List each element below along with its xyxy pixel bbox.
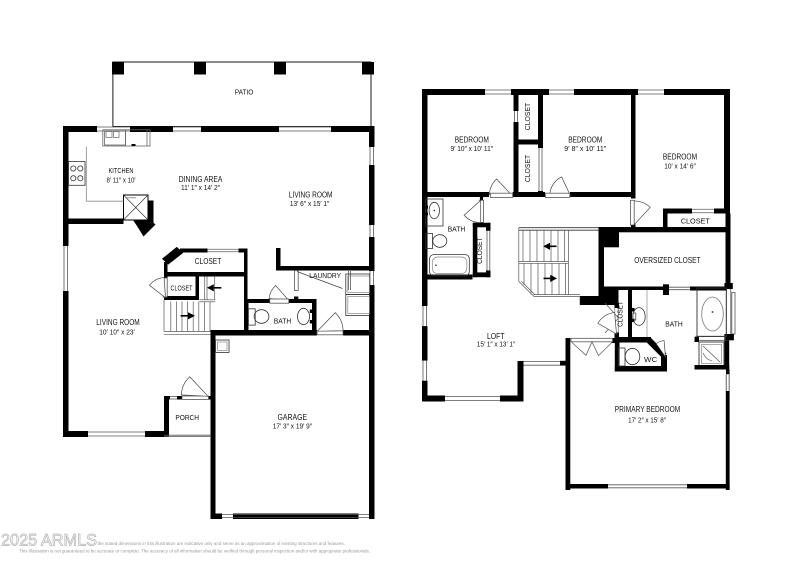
svg-text:CLOSET: CLOSET <box>618 300 625 326</box>
svg-text:9′ 10″ x 10′ 11″: 9′ 10″ x 10′ 11″ <box>451 146 494 153</box>
svg-text:CLOSET: CLOSET <box>525 154 532 182</box>
svg-text:11′ 1″ x 14′ 2″: 11′ 1″ x 14′ 2″ <box>181 185 220 192</box>
svg-text:DINING AREA: DINING AREA <box>179 175 223 184</box>
svg-text:GARAGE: GARAGE <box>277 413 307 422</box>
svg-text:BATH: BATH <box>274 316 291 325</box>
svg-text:10′ x 14′ 6″: 10′ x 14′ 6″ <box>664 164 696 171</box>
svg-text:OVERSIZED CLOSET: OVERSIZED CLOSET <box>634 256 700 265</box>
svg-text:CLOSET: CLOSET <box>477 237 484 264</box>
svg-text:CLOSET: CLOSET <box>681 218 711 225</box>
svg-text:CLOSET: CLOSET <box>195 257 222 266</box>
svg-text:BEDROOM: BEDROOM <box>455 136 489 145</box>
svg-text:17′ 3″ x 19′ 9″: 17′ 3″ x 19′ 9″ <box>273 423 313 430</box>
svg-text:PRIMARY BEDROOM: PRIMARY BEDROOM <box>615 405 681 414</box>
svg-text:the stated dimensions in this: the stated dimensions in this illustrati… <box>98 541 346 546</box>
svg-text:PATIO: PATIO <box>235 88 254 97</box>
svg-text:This illustration is not guara: This illustration is not guaranteed to b… <box>19 548 370 553</box>
svg-text:15′ 1″ x 13′ 1″: 15′ 1″ x 13′ 1″ <box>477 342 516 349</box>
svg-text:8′ 11″ x 10′: 8′ 11″ x 10′ <box>107 177 137 184</box>
svg-text:13′ 6″ x 15′ 1″: 13′ 6″ x 15′ 1″ <box>290 201 330 208</box>
svg-text:9′ 8″ x 10′ 11″: 9′ 8″ x 10′ 11″ <box>564 146 607 153</box>
svg-text:LIVING ROOM: LIVING ROOM <box>96 318 140 327</box>
svg-text:10′ 10″ x 23′: 10′ 10″ x 23′ <box>99 330 135 337</box>
svg-text:WC: WC <box>644 355 658 364</box>
svg-text:BATH: BATH <box>665 319 683 328</box>
svg-text:BEDROOM: BEDROOM <box>568 136 602 145</box>
svg-text:CLOSET: CLOSET <box>525 102 532 130</box>
svg-text:LOFT: LOFT <box>487 332 505 341</box>
svg-text:PORCH: PORCH <box>175 413 199 422</box>
svg-text:2025 ARMLS: 2025 ARMLS <box>1 531 97 550</box>
svg-text:KITCHEN: KITCHEN <box>109 166 134 175</box>
svg-text:CLOSET: CLOSET <box>171 285 193 292</box>
svg-text:BEDROOM: BEDROOM <box>663 152 697 161</box>
svg-text:LAUNDRY: LAUNDRY <box>309 271 341 280</box>
svg-text:LIVING ROOM: LIVING ROOM <box>289 191 333 200</box>
svg-text:BATH: BATH <box>448 225 466 234</box>
svg-text:17′ 2″ x 15′ 8″: 17′ 2″ x 15′ 8″ <box>628 418 666 425</box>
